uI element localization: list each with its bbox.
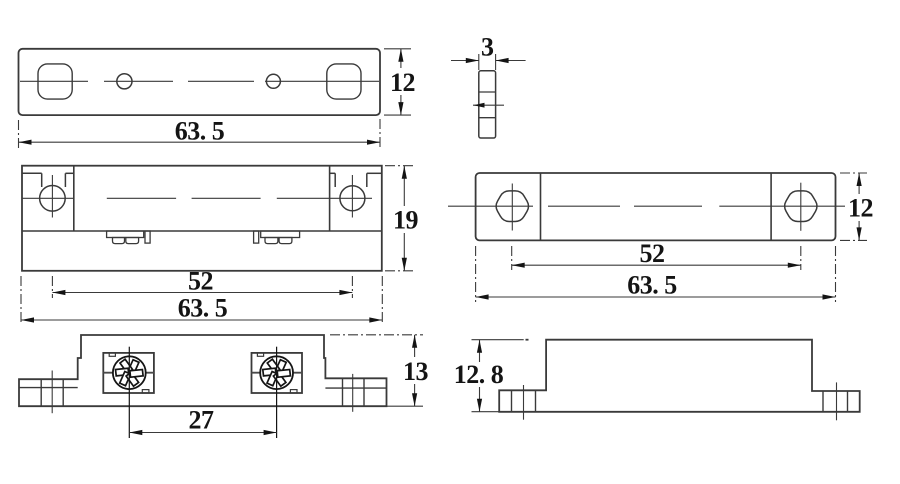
svg-text:13: 13 xyxy=(403,357,429,386)
svg-text:63. 5: 63. 5 xyxy=(178,294,228,323)
svg-text:12: 12 xyxy=(390,68,415,97)
svg-text:52: 52 xyxy=(640,239,665,268)
svg-text:63. 5: 63. 5 xyxy=(627,271,677,300)
svg-text:12: 12 xyxy=(848,194,873,223)
svg-text:19: 19 xyxy=(393,206,419,235)
svg-text:3: 3 xyxy=(481,33,494,62)
svg-text:12. 8: 12. 8 xyxy=(454,360,504,389)
svg-text:27: 27 xyxy=(189,406,215,435)
svg-text:63. 5: 63. 5 xyxy=(175,117,225,146)
svg-text:52: 52 xyxy=(188,267,213,296)
